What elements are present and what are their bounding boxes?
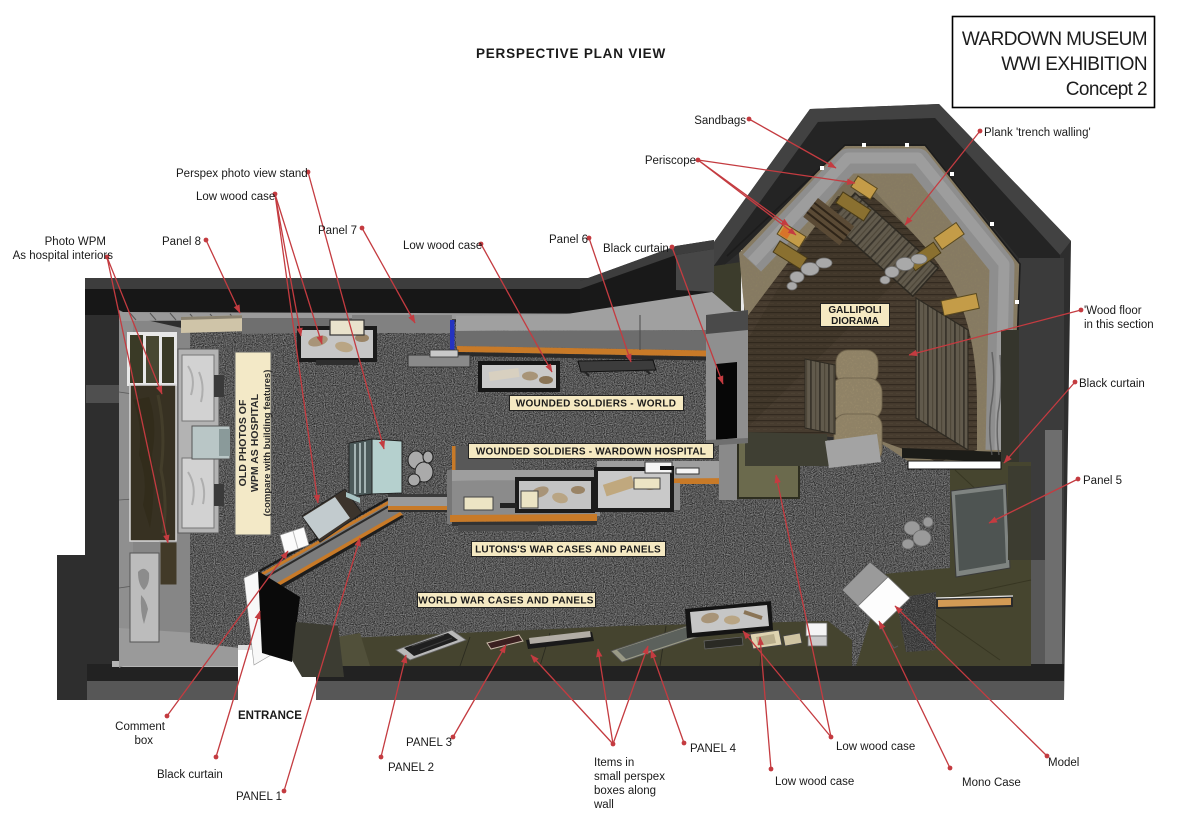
svg-text:Panel 8: Panel 8 xyxy=(162,236,201,248)
svg-text:PANEL 2: PANEL 2 xyxy=(388,762,434,774)
svg-text:Low wood case: Low wood case xyxy=(775,776,854,788)
svg-text:Concept 2: Concept 2 xyxy=(1066,79,1147,100)
svg-text:PANEL 1: PANEL 1 xyxy=(236,791,282,803)
svg-text:in this section: in this section xyxy=(1084,319,1154,331)
svg-text:Low wood case: Low wood case xyxy=(836,741,915,753)
svg-text:small perspex: small perspex xyxy=(594,771,665,783)
svg-text:PERSPECTIVE PLAN VIEW: PERSPECTIVE PLAN VIEW xyxy=(476,46,666,61)
svg-text:Perspex photo view stand: Perspex photo view stand xyxy=(176,168,308,180)
svg-text:WOUNDED SOLDIERS - WARDOWN HOS: WOUNDED SOLDIERS - WARDOWN HOSPITAL xyxy=(476,447,706,458)
svg-text:Items in: Items in xyxy=(594,757,634,769)
svg-text:wall: wall xyxy=(593,799,614,811)
svg-text:Black curtain: Black curtain xyxy=(1079,378,1145,390)
svg-text:Plank 'trench walling': Plank 'trench walling' xyxy=(984,127,1091,139)
svg-text:Periscope: Periscope xyxy=(645,155,696,167)
svg-text:Black curtain: Black curtain xyxy=(603,243,669,255)
svg-text:Sandbags: Sandbags xyxy=(694,115,746,127)
svg-text:As hospital interiors: As hospital interiors xyxy=(13,250,114,262)
svg-text:WORLD WAR CASES AND PANELS: WORLD WAR CASES AND PANELS xyxy=(418,596,594,607)
svg-text:GALLIPOLI: GALLIPOLI xyxy=(828,305,882,316)
svg-text:WOUNDED SOLDIERS - WORLD: WOUNDED SOLDIERS - WORLD xyxy=(516,399,677,410)
svg-text:PANEL 3: PANEL 3 xyxy=(406,737,452,749)
svg-text:WARDOWN MUSEUM: WARDOWN MUSEUM xyxy=(962,29,1147,50)
svg-text:(compare with building feature: (compare with building features) xyxy=(262,370,273,517)
svg-text:Low wood case: Low wood case xyxy=(403,240,482,252)
svg-text:Panel 5: Panel 5 xyxy=(1083,475,1122,487)
svg-text:Photo WPM: Photo WPM xyxy=(45,236,106,248)
svg-text:Panel 7: Panel 7 xyxy=(318,225,357,237)
svg-text:LUTONS'S WAR CASES AND PANELS: LUTONS'S WAR CASES AND PANELS xyxy=(475,545,661,556)
svg-text:OLD PHOTOS OF: OLD PHOTOS OF xyxy=(237,399,249,486)
svg-text:boxes along: boxes along xyxy=(594,785,656,797)
svg-text:DIORAMA: DIORAMA xyxy=(831,316,879,327)
svg-text:Mono Case: Mono Case xyxy=(962,777,1021,789)
svg-text:PANEL 4: PANEL 4 xyxy=(690,743,737,755)
svg-text:Low wood case: Low wood case xyxy=(196,191,275,203)
svg-text:Comment: Comment xyxy=(115,721,166,733)
svg-text:WWI EXHIBITION: WWI EXHIBITION xyxy=(1001,54,1147,75)
svg-text:Model: Model xyxy=(1048,757,1079,769)
svg-text:ENTRANCE: ENTRANCE xyxy=(238,710,302,722)
svg-text:'Wood floor: 'Wood floor xyxy=(1084,305,1142,317)
svg-text:Black curtain: Black curtain xyxy=(157,769,223,781)
svg-text:Panel 6: Panel 6 xyxy=(549,234,588,246)
svg-text:WPM AS HOSPITAL: WPM AS HOSPITAL xyxy=(249,393,261,492)
svg-text:box: box xyxy=(134,735,153,747)
